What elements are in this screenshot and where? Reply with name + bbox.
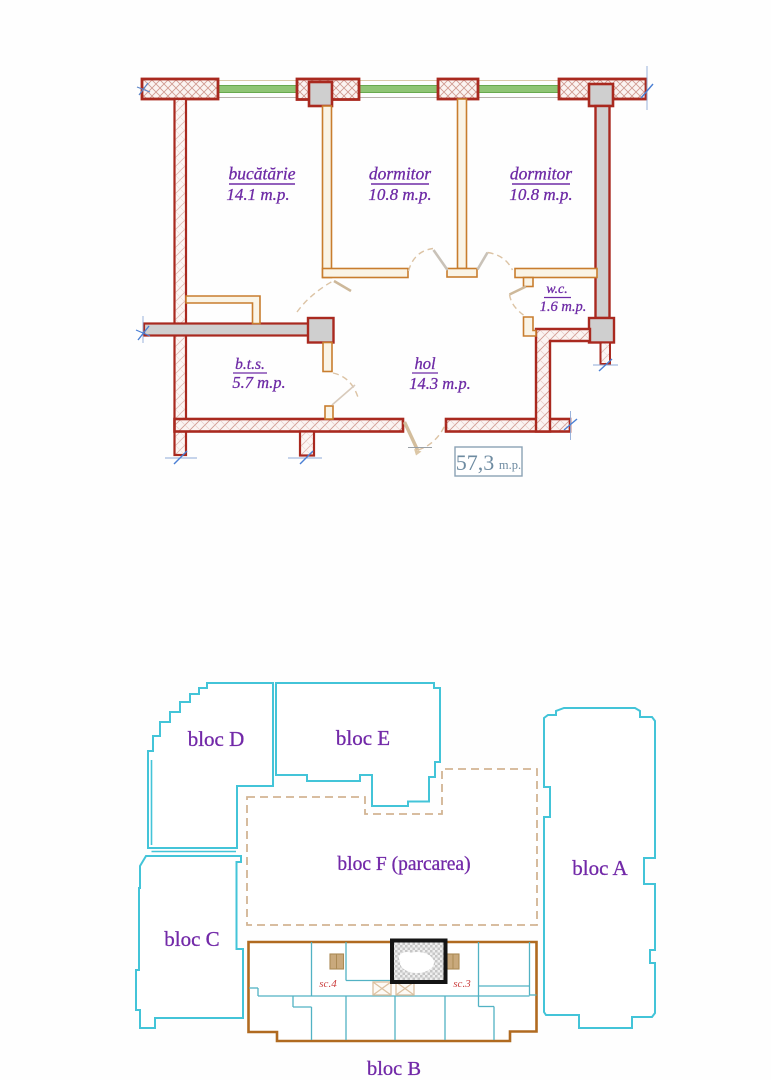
svg-text:14.1 m.p.: 14.1 m.p. (226, 185, 289, 204)
svg-text:b.t.s.: b.t.s. (235, 356, 265, 373)
svg-text:bloc F (parcarea): bloc F (parcarea) (337, 854, 470, 875)
svg-text:bloc B: bloc B (367, 1058, 421, 1080)
svg-text:hol: hol (414, 354, 436, 373)
svg-text:bloc C: bloc C (164, 927, 219, 951)
svg-text:bloc A: bloc A (572, 856, 628, 880)
svg-text:57,3: 57,3 (456, 450, 495, 475)
svg-text:dormitor: dormitor (510, 164, 572, 184)
svg-text:10.8 m.p.: 10.8 m.p. (368, 185, 431, 204)
svg-text:bloc E: bloc E (336, 726, 390, 750)
svg-text:dormitor: dormitor (369, 164, 431, 184)
svg-text:m.p.: m.p. (499, 458, 521, 472)
svg-text:w.c.: w.c. (546, 282, 568, 297)
svg-text:5.7 m.p.: 5.7 m.p. (232, 373, 285, 392)
svg-text:1.6 m.p.: 1.6 m.p. (540, 299, 587, 315)
svg-text:sc.3: sc.3 (453, 978, 471, 990)
svg-text:14.3 m.p.: 14.3 m.p. (409, 374, 470, 393)
svg-text:sc.4: sc.4 (319, 978, 337, 990)
svg-text:10.8 m.p.: 10.8 m.p. (509, 185, 572, 204)
svg-text:bucătărie: bucătărie (228, 164, 295, 184)
svg-text:bloc D: bloc D (188, 727, 245, 751)
